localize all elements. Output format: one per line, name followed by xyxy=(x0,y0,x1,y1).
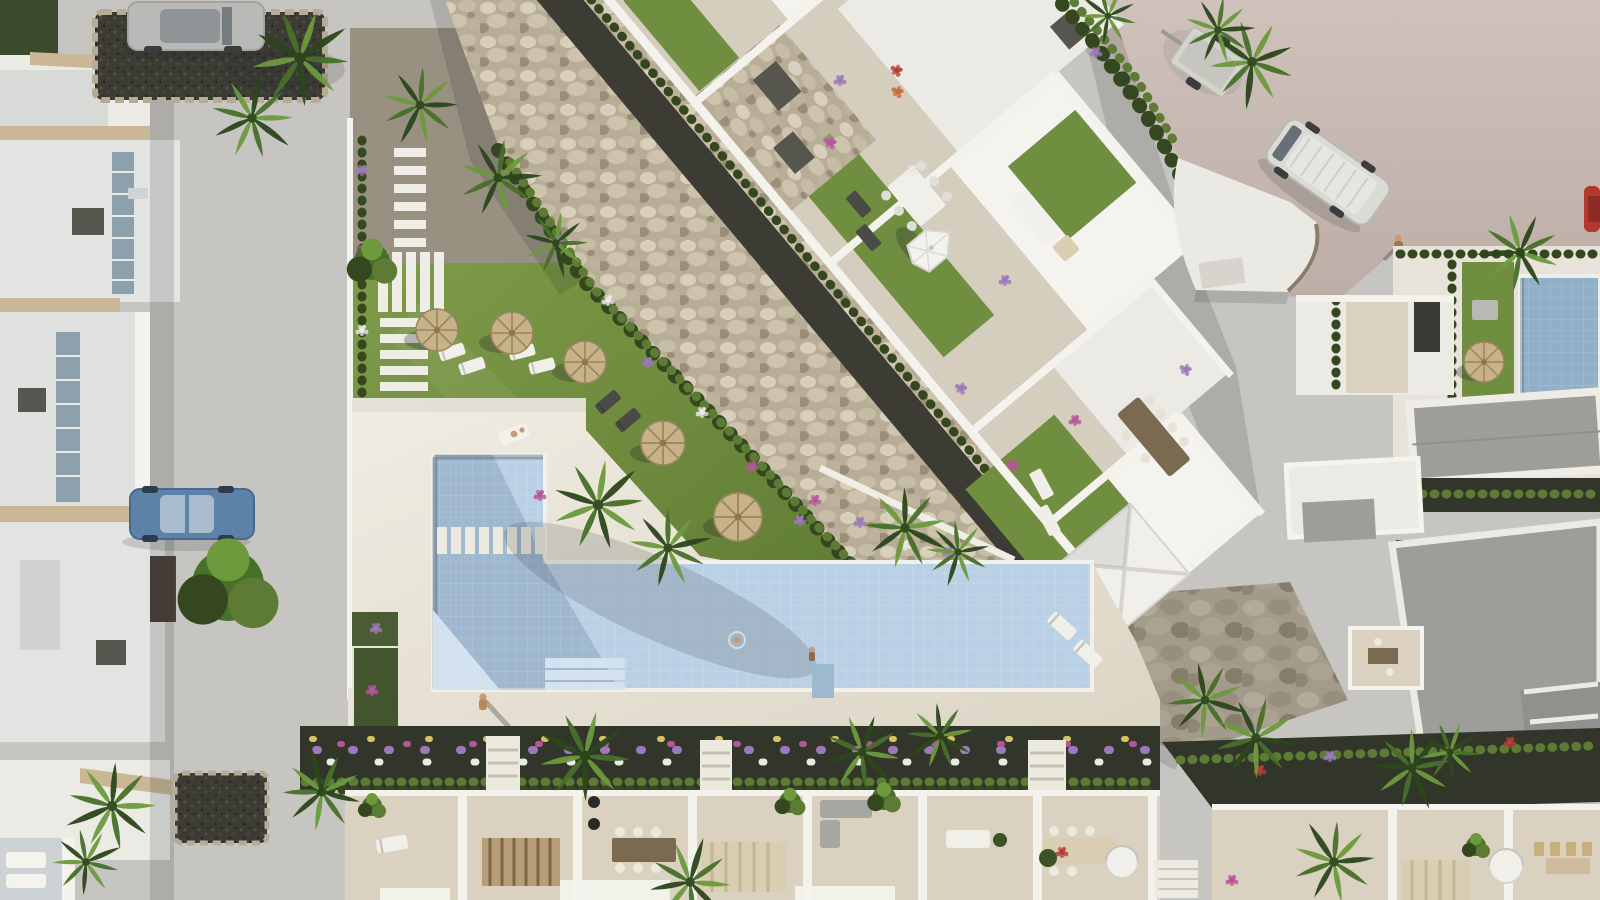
aerial-render-canvas xyxy=(0,0,1600,900)
terrace-notch xyxy=(1350,628,1422,688)
skylight-strip xyxy=(112,152,134,294)
pergola-light xyxy=(1402,860,1470,900)
ac-unit xyxy=(72,208,104,235)
bottom-terraces xyxy=(300,726,1160,900)
red-car xyxy=(1584,186,1600,232)
dome-umbrella xyxy=(1106,846,1138,878)
deck-planting xyxy=(352,612,398,740)
outdoor-shower xyxy=(812,664,834,698)
straw-parasol xyxy=(1464,342,1504,382)
ac-unit xyxy=(96,640,126,665)
white-building-c xyxy=(1286,458,1422,543)
silver-car xyxy=(126,2,264,62)
gravel-bed xyxy=(175,773,267,843)
ac-unit xyxy=(18,388,46,412)
dome-umbrella xyxy=(1489,849,1523,883)
pergola xyxy=(482,838,560,886)
planting-band xyxy=(1162,728,1600,808)
aerial-render xyxy=(0,0,1600,900)
lower-terrace xyxy=(0,838,62,900)
white-building-mid xyxy=(1296,295,1454,395)
bottom-right-terraces xyxy=(1154,728,1600,900)
gray-roof-a xyxy=(1410,391,1600,482)
